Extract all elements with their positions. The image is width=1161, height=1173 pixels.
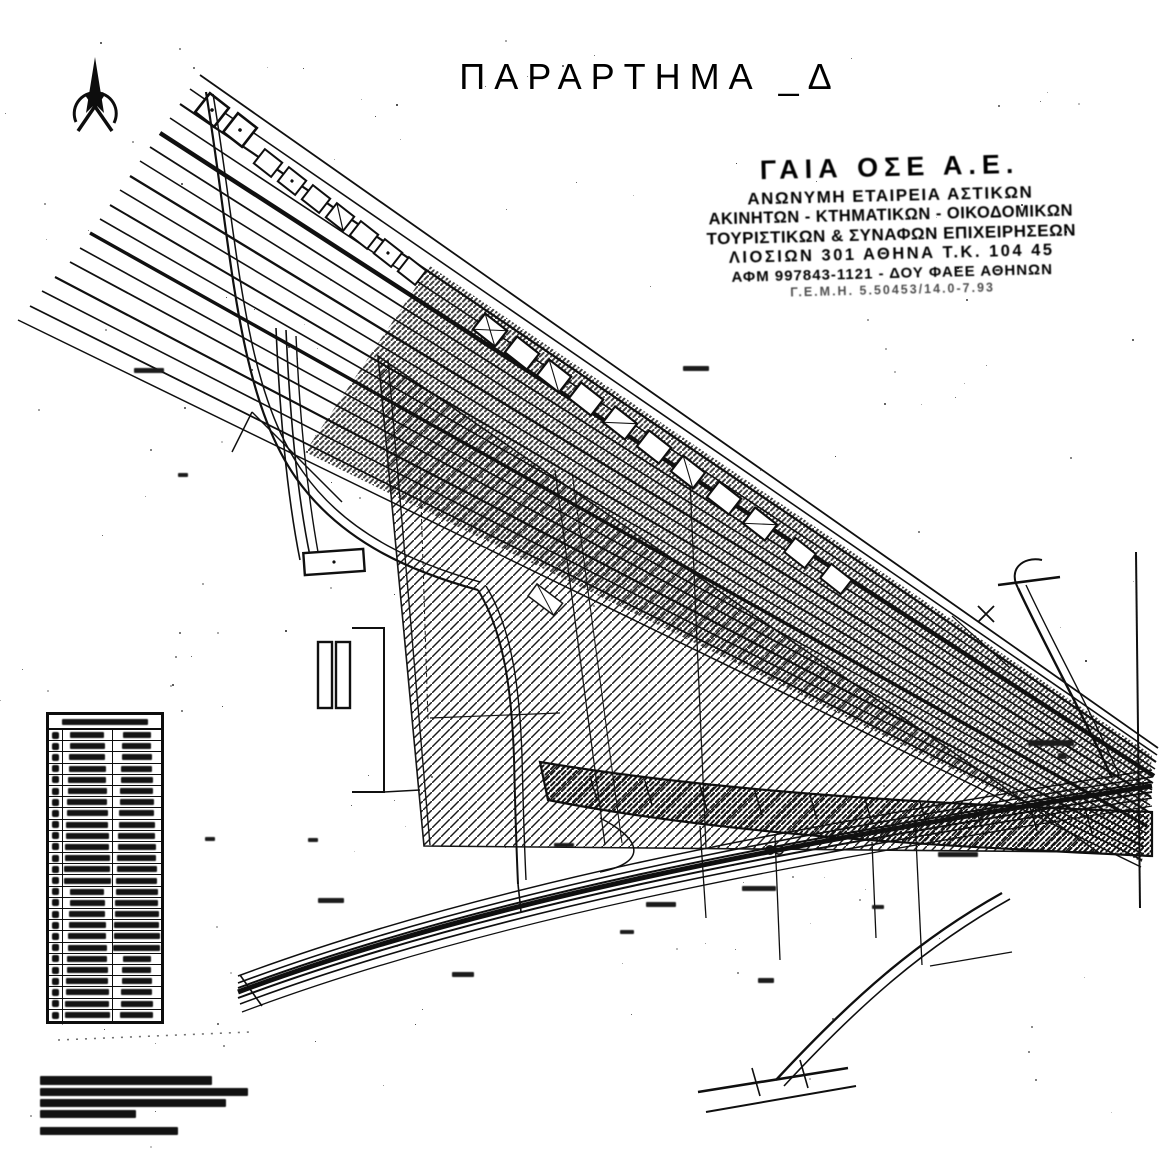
table-row: [49, 987, 161, 998]
y-coordinate-cell: [112, 887, 162, 897]
x-coordinate-cell: [63, 965, 112, 975]
table-row: [49, 887, 161, 898]
point-id-cell: [49, 875, 63, 885]
x-coordinate-cell: [63, 954, 112, 964]
y-coordinate-cell: [112, 831, 162, 841]
table-row: [49, 820, 161, 831]
table-row: [49, 931, 161, 942]
x-coordinate-cell: [63, 864, 112, 874]
point-id-cell: [49, 820, 63, 830]
y-coordinate-cell: [112, 808, 162, 818]
x-coordinate-cell: [63, 752, 112, 762]
point-id-cell: [49, 752, 63, 762]
point-id-cell: [49, 797, 63, 807]
point-id-cell: [49, 853, 63, 863]
point-id-cell: [49, 741, 63, 751]
scanned-plan-page: ΠΑΡΑΡΤΗΜΑ _Δ ΓΑΙΑ ΟΣΕ Α.Ε. ΑΝΩΝΥΜΗ ΕΤΑΙΡ…: [0, 0, 1161, 1173]
y-coordinate-cell: [112, 909, 162, 919]
point-id-cell: [49, 1010, 63, 1021]
y-coordinate-cell: [112, 965, 162, 975]
page-title: ΠΑΡΑΡΤΗΜΑ _Δ: [420, 56, 880, 98]
table-row: [49, 965, 161, 976]
y-coordinate-cell: [112, 741, 162, 751]
coordinate-table-body: [49, 730, 161, 1021]
point-id-cell: [49, 965, 63, 975]
footnote-line: [40, 1088, 248, 1096]
table-row: [49, 786, 161, 797]
point-id-cell: [49, 954, 63, 964]
y-coordinate-cell: [112, 875, 162, 885]
table-row: [49, 1010, 161, 1021]
point-id-cell: [49, 864, 63, 874]
x-coordinate-cell: [63, 875, 112, 885]
footnote-block: [40, 1076, 248, 1138]
x-coordinate-cell: [63, 741, 112, 751]
footnote-line: [40, 1076, 212, 1085]
y-coordinate-cell: [112, 820, 162, 830]
coordinate-table-header: [49, 715, 161, 730]
branch-road: [698, 893, 1012, 1112]
y-coordinate-cell: [112, 752, 162, 762]
y-coordinate-cell: [112, 999, 162, 1009]
x-coordinate-cell: [63, 831, 112, 841]
table-row: [49, 954, 161, 965]
point-id-cell: [49, 931, 63, 941]
x-coordinate-cell: [63, 887, 112, 897]
y-coordinate-cell: [112, 775, 162, 785]
footnote-line: [40, 1127, 178, 1135]
y-coordinate-cell: [112, 764, 162, 774]
x-coordinate-cell: [63, 730, 112, 740]
y-coordinate-cell: [112, 797, 162, 807]
x-coordinate-cell: [63, 797, 112, 807]
table-row: [49, 853, 161, 864]
point-id-cell: [49, 999, 63, 1009]
point-id-cell: [49, 842, 63, 852]
y-coordinate-cell: [112, 943, 162, 953]
x-coordinate-cell: [63, 898, 112, 908]
y-coordinate-cell: [112, 786, 162, 796]
y-coordinate-cell: [112, 976, 162, 986]
point-id-cell: [49, 786, 63, 796]
point-id-cell: [49, 976, 63, 986]
footnote-line: [40, 1110, 136, 1118]
y-coordinate-cell: [112, 931, 162, 941]
table-row: [49, 797, 161, 808]
table-row: [49, 741, 161, 752]
table-row: [49, 730, 161, 741]
y-coordinate-cell: [112, 987, 162, 997]
point-id-cell: [49, 775, 63, 785]
point-id-cell: [49, 831, 63, 841]
table-row: [49, 842, 161, 853]
table-row: [49, 752, 161, 763]
point-id-cell: [49, 909, 63, 919]
point-id-cell: [49, 987, 63, 997]
x-coordinate-cell: [63, 842, 112, 852]
x-coordinate-cell: [63, 764, 112, 774]
point-id-cell: [49, 898, 63, 908]
table-row: [49, 898, 161, 909]
y-coordinate-cell: [112, 842, 162, 852]
point-id-cell: [49, 943, 63, 953]
x-coordinate-cell: [63, 853, 112, 863]
table-row: [49, 775, 161, 786]
x-coordinate-cell: [63, 1010, 112, 1021]
y-coordinate-cell: [112, 730, 162, 740]
point-id-cell: [49, 887, 63, 897]
x-coordinate-cell: [63, 909, 112, 919]
x-coordinate-cell: [63, 786, 112, 796]
north-arrow-icon: [74, 57, 116, 131]
company-stamp: ΓΑΙΑ ΟΣΕ Α.Ε. ΑΝΩΝΥΜΗ ΕΤΑΙΡΕΙΑ ΑΣΤΙΚΩΝ Α…: [688, 147, 1093, 302]
table-row: [49, 943, 161, 954]
point-id-cell: [49, 808, 63, 818]
x-coordinate-cell: [63, 987, 112, 997]
table-row: [49, 864, 161, 875]
y-coordinate-cell: [112, 1010, 162, 1021]
x-coordinate-cell: [63, 808, 112, 818]
dotted-trail: [58, 1032, 250, 1040]
x-coordinate-cell: [63, 943, 112, 953]
point-id-cell: [49, 920, 63, 930]
table-row: [49, 831, 161, 842]
y-coordinate-cell: [112, 954, 162, 964]
table-row: [49, 976, 161, 987]
y-coordinate-cell: [112, 898, 162, 908]
footnote-line: [40, 1099, 226, 1107]
table-row: [49, 920, 161, 931]
coordinate-table: [46, 712, 164, 1024]
point-id-cell: [49, 764, 63, 774]
table-row: [49, 808, 161, 819]
x-coordinate-cell: [63, 976, 112, 986]
y-coordinate-cell: [112, 853, 162, 863]
x-coordinate-cell: [63, 999, 112, 1009]
y-coordinate-cell: [112, 864, 162, 874]
table-row: [49, 909, 161, 920]
y-coordinate-cell: [112, 920, 162, 930]
x-coordinate-cell: [63, 820, 112, 830]
table-row: [49, 875, 161, 886]
table-row: [49, 999, 161, 1010]
point-id-cell: [49, 730, 63, 740]
table-row: [49, 764, 161, 775]
x-coordinate-cell: [63, 920, 112, 930]
x-coordinate-cell: [63, 775, 112, 785]
x-coordinate-cell: [63, 931, 112, 941]
